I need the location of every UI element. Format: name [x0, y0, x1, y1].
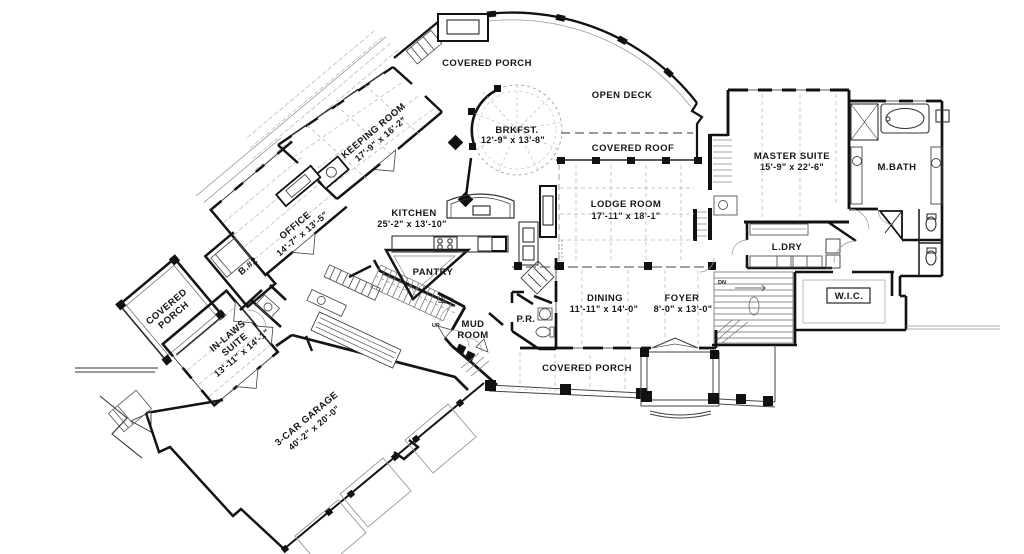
svg-text:KITCHEN: KITCHEN: [391, 208, 436, 219]
svg-text:8'-0" x 13'-0": 8'-0" x 13'-0": [654, 304, 713, 314]
svg-text:COVERED PORCH: COVERED PORCH: [442, 58, 532, 69]
svg-text:L.DRY: L.DRY: [772, 242, 803, 253]
svg-text:LODGE ROOM: LODGE ROOM: [591, 199, 661, 210]
svg-text:FOYER: FOYER: [665, 293, 700, 304]
svg-text:COVERED ROOF: COVERED ROOF: [592, 143, 674, 154]
svg-text:15'-9" x 22'-6": 15'-9" x 22'-6": [760, 162, 824, 172]
svg-text:MUD: MUD: [462, 319, 485, 330]
svg-text:17'-11" x 18'-1": 17'-11" x 18'-1": [592, 211, 661, 221]
svg-text:12'-9" x 13'-8": 12'-9" x 13'-8": [481, 135, 545, 145]
svg-text:25'-2" x 13'-10": 25'-2" x 13'-10": [377, 219, 446, 229]
svg-text:ROOM: ROOM: [457, 330, 488, 341]
svg-text:MASTER SUITE: MASTER SUITE: [754, 151, 830, 162]
svg-text:COVERED PORCH: COVERED PORCH: [542, 363, 632, 374]
svg-text:W.I.C.: W.I.C.: [835, 291, 864, 302]
svg-text:DINING: DINING: [587, 293, 623, 304]
svg-text:PANTRY: PANTRY: [413, 267, 454, 278]
svg-text:P.R.: P.R.: [516, 314, 535, 325]
svg-text:M.BATH: M.BATH: [878, 162, 917, 173]
svg-text:DN: DN: [718, 280, 726, 286]
svg-text:OPEN DECK: OPEN DECK: [592, 90, 653, 101]
